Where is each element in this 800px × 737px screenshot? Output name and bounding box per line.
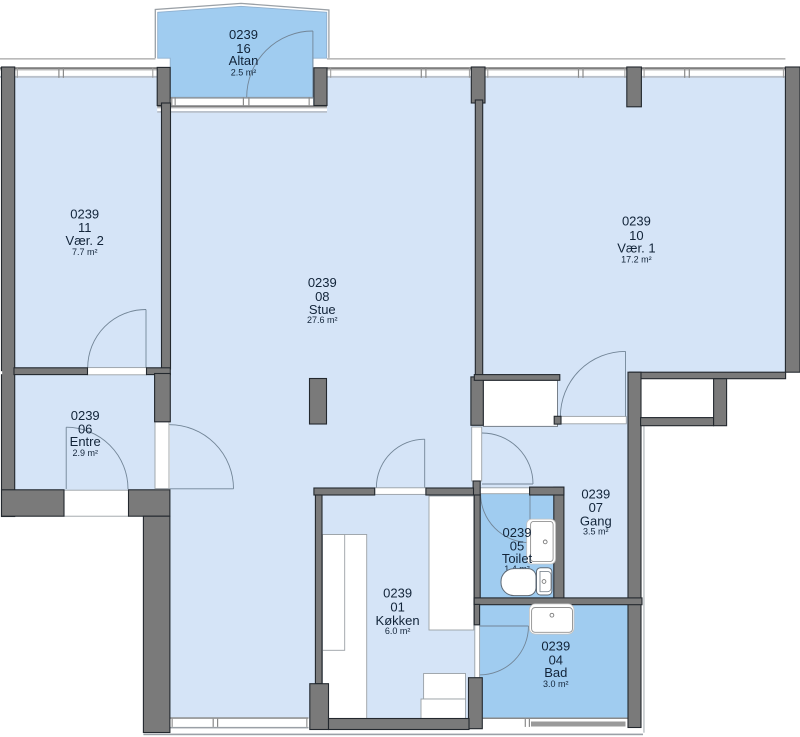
svg-text:0239: 0239 — [308, 275, 337, 290]
svg-text:0239: 0239 — [383, 586, 412, 601]
svg-text:7.7 m²: 7.7 m² — [72, 247, 98, 257]
svg-text:27.6 m²: 27.6 m² — [307, 315, 338, 325]
svg-text:Vær. 2: Vær. 2 — [66, 233, 104, 248]
svg-text:6.0 m²: 6.0 m² — [385, 626, 411, 636]
svg-text:17.2 m²: 17.2 m² — [621, 255, 652, 265]
svg-text:0239: 0239 — [622, 214, 651, 229]
svg-text:2.9 m²: 2.9 m² — [72, 448, 98, 458]
svg-text:3.0 m²: 3.0 m² — [543, 679, 569, 689]
svg-text:0239: 0239 — [541, 638, 570, 653]
svg-text:3.5 m²: 3.5 m² — [583, 527, 609, 537]
svg-text:Altan: Altan — [229, 53, 259, 68]
svg-text:2.5 m²: 2.5 m² — [231, 68, 257, 78]
svg-text:Vær. 1: Vær. 1 — [617, 241, 655, 256]
svg-text:Bad: Bad — [544, 665, 567, 680]
svg-text:Entre: Entre — [70, 434, 101, 449]
